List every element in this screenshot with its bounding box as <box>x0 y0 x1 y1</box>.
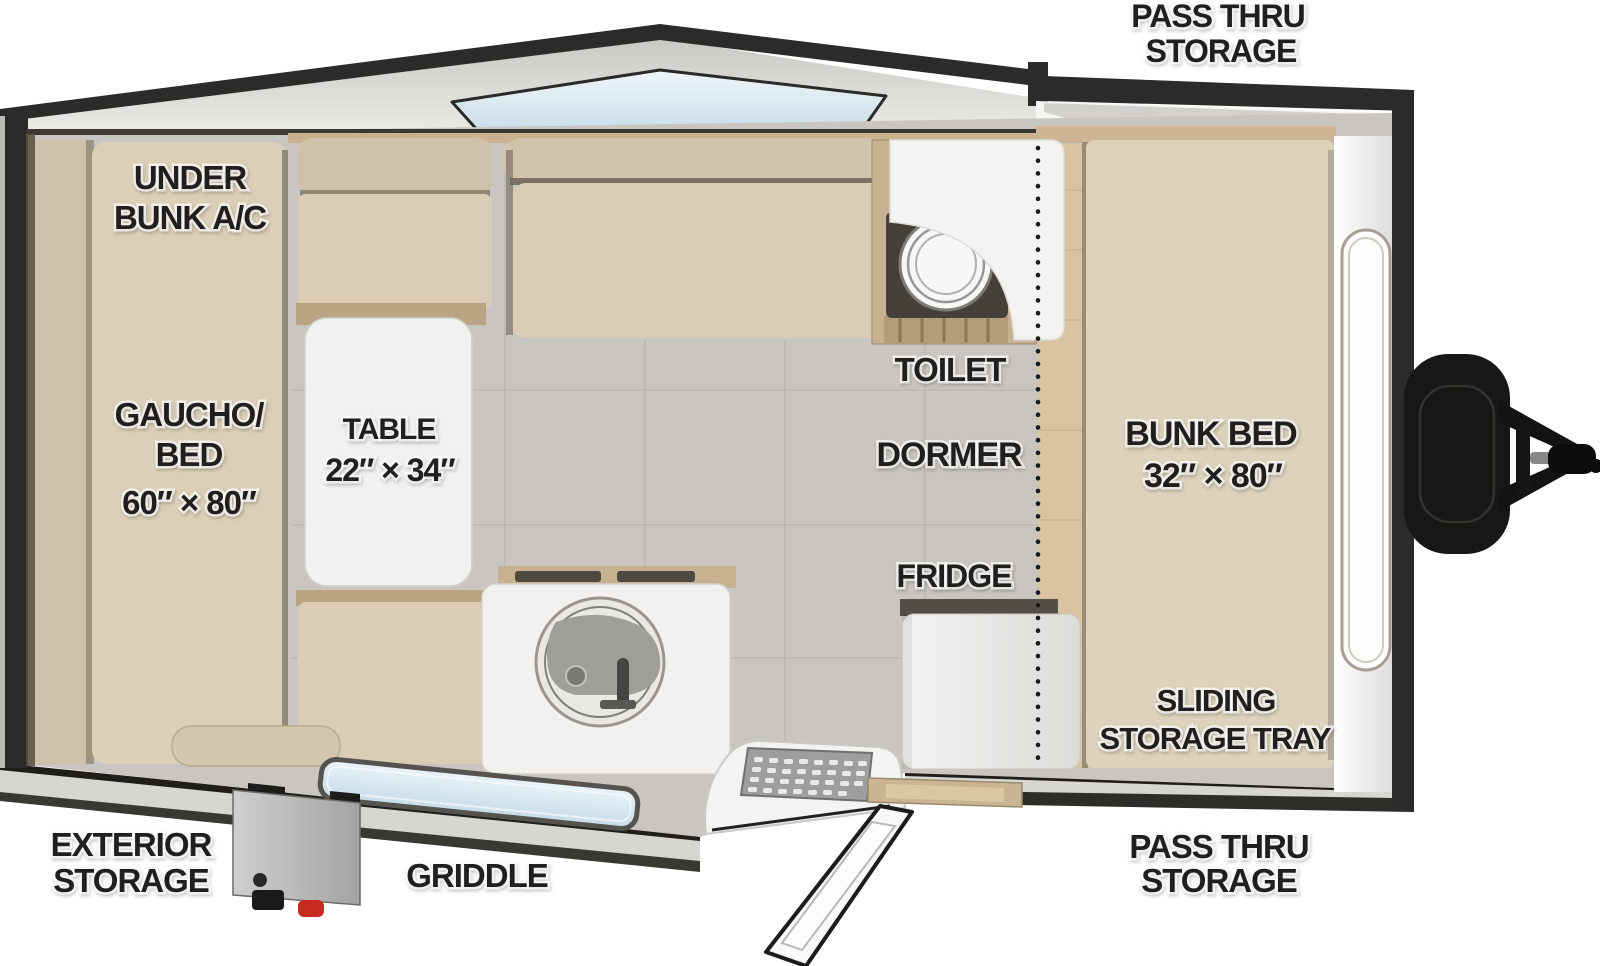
fridge <box>900 599 1080 769</box>
label-pass-thru-top-1: PASS THRU <box>1131 0 1305 34</box>
label-exterior-1: EXTERIOR <box>51 826 213 863</box>
griddle-ignitor <box>253 873 267 887</box>
label-pass-thru-bottom-2: STORAGE <box>1141 862 1297 899</box>
fridge-body <box>902 614 1080 769</box>
sofa-left-shadow <box>506 150 513 335</box>
sofa-bench <box>502 138 888 338</box>
label-gaucho-2: BED <box>156 436 223 473</box>
label-bunk-1: BUNK BED <box>1125 415 1297 453</box>
bolster-cushion <box>172 726 340 766</box>
label-sliding-2: STORAGE TRAY <box>1100 721 1332 756</box>
counter-slot-2 <box>617 571 695 582</box>
hitch-coupler <box>1548 444 1596 474</box>
fridge-shadow <box>902 614 912 769</box>
toilet-cabinet <box>872 140 1064 344</box>
hitch-assembly <box>1404 354 1600 554</box>
griddle-unit <box>233 783 360 917</box>
label-exterior-2: STORAGE <box>53 862 209 899</box>
label-gaucho-1: GAUCHO/ <box>115 396 265 433</box>
sofa-backrest <box>502 138 888 184</box>
label-pass-thru-bottom-1: PASS THRU <box>1129 828 1308 865</box>
sink-drain <box>566 666 586 686</box>
sink-faucet <box>617 658 629 706</box>
label-griddle: GRIDDLE <box>406 857 548 894</box>
griddle-body <box>233 790 360 905</box>
label-table-2: 22″ × 34″ <box>325 452 455 488</box>
bunk-mattress <box>1086 140 1334 768</box>
griddle-foot <box>252 890 284 910</box>
label-under-bunk-ac-2: BUNK A/C <box>114 199 266 236</box>
gaucho-back-cushion <box>30 140 92 764</box>
label-under-bunk-ac-1: UNDER <box>134 159 248 196</box>
label-sliding-1: SLIDING <box>1157 683 1276 718</box>
counter-slot <box>515 571 601 582</box>
bunk-bed <box>1082 140 1334 768</box>
bunk-right-shadow <box>1328 150 1334 760</box>
dinette-seat-top <box>298 194 492 308</box>
sink-counter <box>482 566 736 774</box>
floorplan-diagram: PASS THRU STORAGE UNDER BUNK A/C GAUCHO/… <box>0 0 1600 966</box>
entry-door-glass <box>782 822 895 950</box>
fridge-top-edge <box>900 599 1058 616</box>
faucet-base <box>600 700 636 709</box>
label-toilet: TOILET <box>895 351 1007 388</box>
label-table-1: TABLE <box>343 413 436 446</box>
label-fridge: FRIDGE <box>897 558 1013 594</box>
label-bunk-2: 32″ × 80″ <box>1144 457 1283 495</box>
wall-crease <box>26 134 35 766</box>
label-gaucho-3: 60″ × 80″ <box>122 484 257 521</box>
tongue-cross-member <box>1516 420 1530 494</box>
entry-step <box>741 748 872 801</box>
griddle-knob <box>298 900 324 917</box>
label-pass-thru-top-2: STORAGE <box>1146 33 1297 69</box>
floorplan-page: PASS THRU STORAGE UNDER BUNK A/C GAUCHO/… <box>0 0 1600 966</box>
left-wall <box>5 116 28 768</box>
dinette-backrest <box>298 138 492 196</box>
left-wall-trim <box>0 116 5 768</box>
mattress-edge-shadow <box>282 150 288 756</box>
sofa-seat <box>512 183 886 338</box>
label-dormer: DORMER <box>876 436 1022 474</box>
